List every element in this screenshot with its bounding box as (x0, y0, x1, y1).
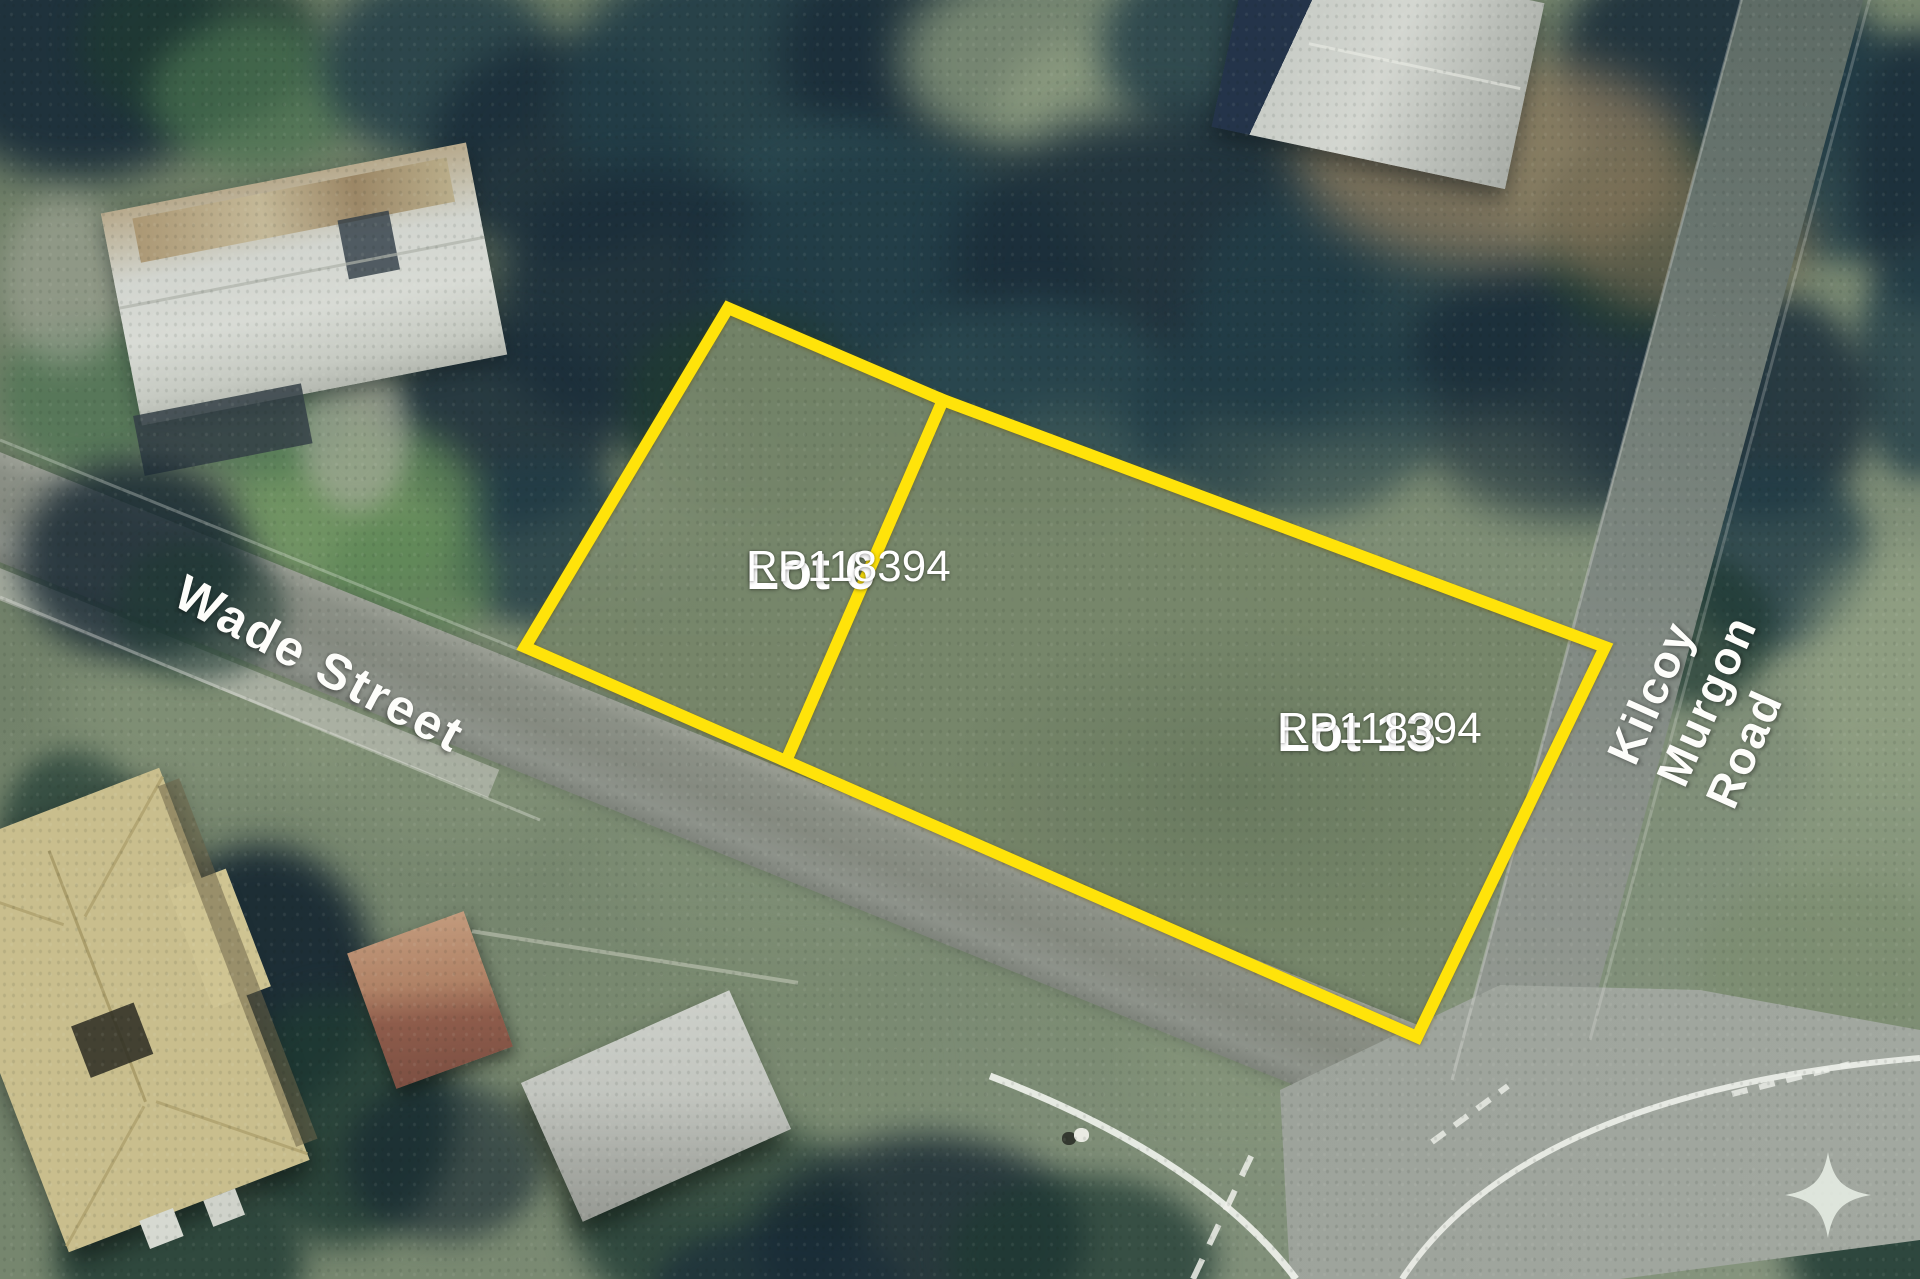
lot6-plan: RP118394 (746, 543, 951, 591)
lot-outline (525, 308, 1605, 1037)
four-pointed-star (1785, 1152, 1871, 1238)
lot13-plan: RP118394 (1277, 705, 1482, 753)
aerial-photo: Lot 6 RP118394 Lot 13 RP118394 Wade Stre… (0, 0, 1920, 1279)
sparkle-watermark-icon (1785, 1152, 1871, 1238)
